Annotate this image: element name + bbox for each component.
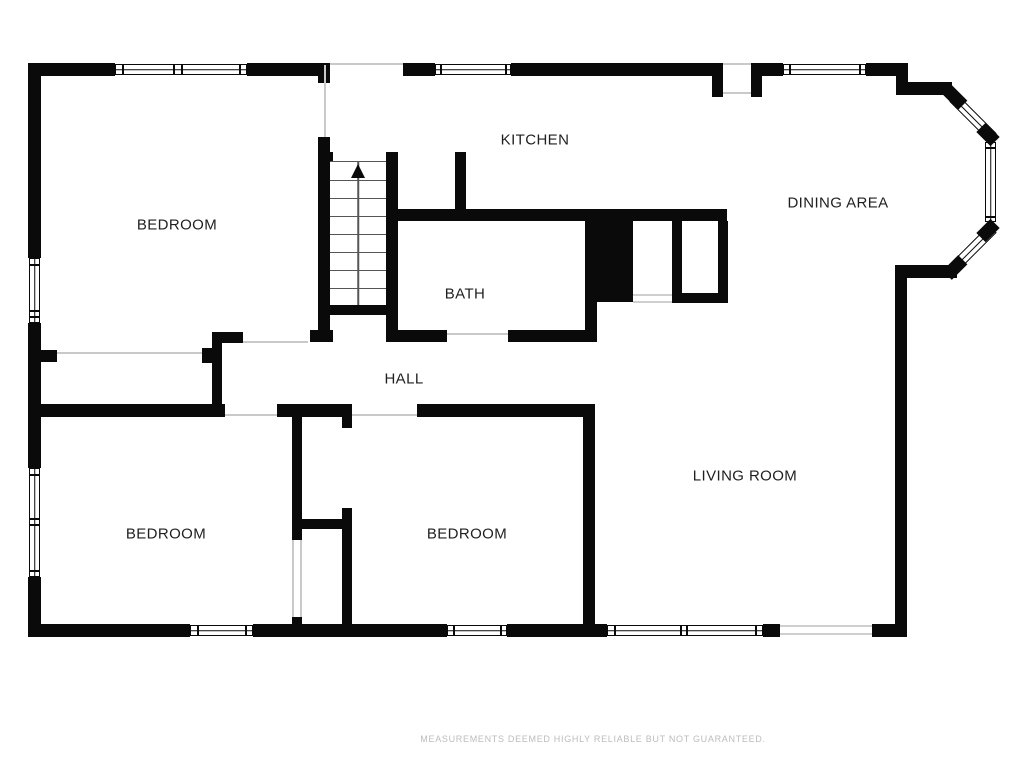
window <box>607 625 763 636</box>
wall <box>712 63 723 97</box>
wall <box>28 63 41 258</box>
door-opening-line <box>57 352 202 354</box>
wall <box>247 63 330 76</box>
door-opening-line <box>292 540 294 617</box>
window-divider <box>173 65 175 74</box>
wall <box>751 63 762 97</box>
wall <box>508 330 593 342</box>
window-divider <box>986 147 995 149</box>
wall <box>672 293 728 303</box>
window-divider <box>30 310 39 312</box>
room-label-bedroom-2: BEDROOM <box>126 526 206 543</box>
window-divider <box>30 570 39 572</box>
wall <box>895 278 907 637</box>
window-divider <box>789 65 791 74</box>
wall <box>585 209 633 302</box>
window-center-line <box>608 630 762 632</box>
window-center-line <box>191 630 252 632</box>
door-opening-line <box>723 92 751 94</box>
room-label-bedroom-1: BEDROOM <box>137 217 217 234</box>
window-center-line <box>34 259 36 322</box>
sliding-opening <box>780 625 872 635</box>
staircase <box>330 161 386 305</box>
wall <box>318 305 398 315</box>
window-divider <box>755 626 757 635</box>
wall <box>342 508 352 625</box>
window-divider <box>680 626 682 635</box>
door-opening-line <box>300 540 302 617</box>
window-divider <box>986 216 995 218</box>
wall <box>212 332 243 343</box>
window-center-line <box>990 143 992 221</box>
wall <box>872 624 907 637</box>
wall <box>403 63 435 76</box>
wall <box>277 404 352 417</box>
wall <box>398 209 727 221</box>
wall <box>417 404 595 417</box>
door-opening-line <box>352 414 417 416</box>
window-center-line <box>34 469 36 576</box>
room-label-living-room: LIVING ROOM <box>693 468 797 485</box>
door-opening-line <box>324 65 326 137</box>
window-divider <box>859 65 861 74</box>
wall <box>511 63 712 76</box>
wall <box>40 350 57 362</box>
window-divider <box>181 65 183 74</box>
window-divider <box>239 65 241 74</box>
wall <box>253 624 447 637</box>
stairs-direction-arrow <box>351 164 365 178</box>
door-opening-line <box>723 63 751 65</box>
wall <box>28 323 41 468</box>
window <box>29 258 40 323</box>
window <box>447 625 507 636</box>
window <box>190 625 253 636</box>
window <box>29 468 40 577</box>
window-center-line <box>448 630 506 632</box>
window-divider <box>30 316 39 318</box>
room-label-bedroom-3: BEDROOM <box>427 526 507 543</box>
door-opening-line <box>243 341 308 343</box>
window-divider <box>440 65 442 74</box>
window-divider <box>500 626 502 635</box>
window-center-line <box>436 69 510 71</box>
wall <box>40 404 225 417</box>
window-divider <box>453 626 455 635</box>
wall <box>28 577 41 637</box>
wall <box>202 348 212 363</box>
window-divider <box>30 524 39 526</box>
window-divider <box>245 626 247 635</box>
wall <box>212 343 222 404</box>
window-divider <box>122 65 124 74</box>
disclaimer-text: MEASUREMENTS DEEMED HIGHLY RELIABLE BUT … <box>420 734 765 744</box>
wall <box>672 221 682 303</box>
window-center-line <box>784 69 865 71</box>
window <box>985 142 996 222</box>
wall <box>455 152 466 212</box>
door-opening-line <box>447 333 508 335</box>
wall <box>386 330 447 342</box>
wall <box>507 624 607 637</box>
stair-center-line <box>357 162 359 305</box>
window-divider <box>686 626 688 635</box>
window <box>115 64 247 75</box>
wall <box>292 617 302 625</box>
window <box>783 64 866 75</box>
wall <box>310 330 333 342</box>
window-divider <box>505 65 507 74</box>
window <box>435 64 511 75</box>
room-label-dining-area: DINING AREA <box>787 195 888 212</box>
wall <box>718 221 728 303</box>
door-opening-line <box>330 63 403 65</box>
window-divider <box>614 626 616 635</box>
wall <box>28 624 190 637</box>
sliding-opening <box>633 294 672 303</box>
door-opening-line <box>225 414 277 416</box>
wall <box>762 63 783 76</box>
wall <box>28 63 115 76</box>
wall <box>583 417 595 625</box>
wall <box>763 624 780 637</box>
room-label-kitchen: KITCHEN <box>501 132 570 149</box>
window-divider <box>197 626 199 635</box>
room-label-bath: BATH <box>445 286 486 303</box>
room-label-hall: HALL <box>384 371 423 388</box>
wall <box>896 63 908 95</box>
floor-plan: BEDROOMKITCHENDINING AREABATHHALLBEDROOM… <box>0 0 1024 768</box>
window-divider <box>30 264 39 266</box>
window-divider <box>30 474 39 476</box>
window-divider <box>30 518 39 520</box>
wall <box>342 417 352 428</box>
